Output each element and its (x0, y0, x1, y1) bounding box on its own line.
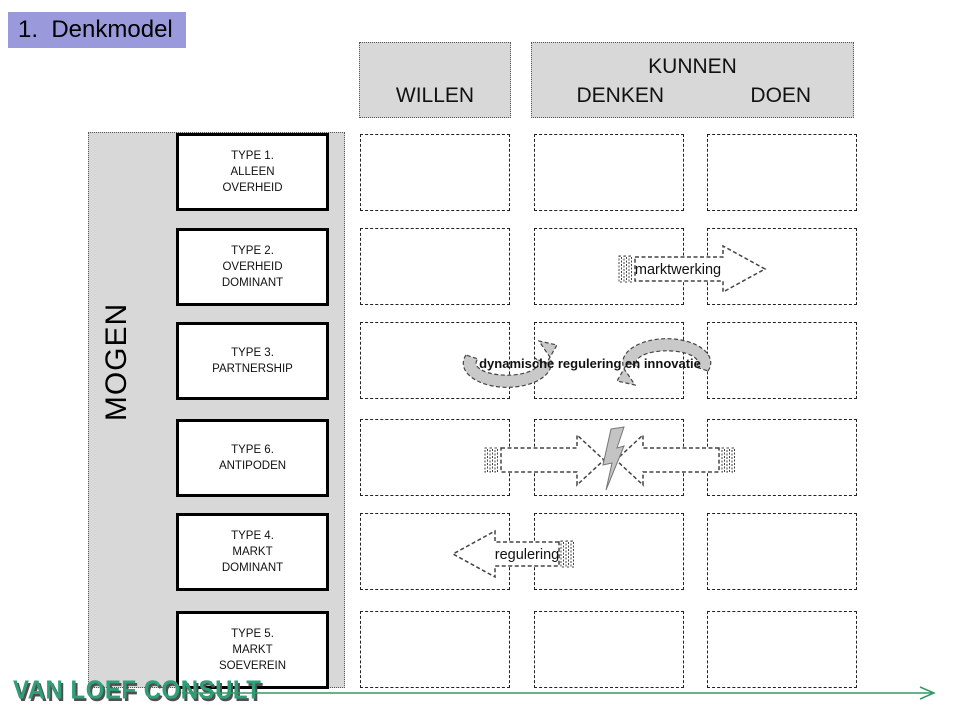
grid-cell (360, 228, 510, 305)
header-willen-label: WILLEN (396, 84, 474, 108)
type-box-4: TYPE 4. MARKT DOMINANT (176, 513, 329, 591)
header-doen-label: DOEN (709, 84, 853, 108)
header-kunnen: KUNNEN DENKEN DOEN (531, 42, 854, 118)
grid-cell (360, 611, 510, 688)
type-box-3: TYPE 3. PARTNERSHIP (176, 322, 329, 400)
marktwerking-arrow-label: marktwerking (635, 262, 721, 278)
grid-cell (360, 134, 510, 211)
dynamische-regulering-label: dynamische regulering en innovatie (470, 356, 710, 371)
grid-cell (534, 134, 684, 211)
page-title: 1. Denkmodel (8, 12, 186, 48)
marktwerking-arrow: marktwerking (618, 243, 768, 295)
type-box-6: TYPE 6. ANTIPODEN (176, 419, 329, 497)
header-kunnen-label: KUNNEN (532, 55, 853, 79)
type-box-1: TYPE 1. ALLEEN OVERHEID (176, 133, 329, 211)
opposing-arrows (484, 424, 736, 496)
header-willen: WILLEN (359, 42, 511, 118)
type-box-2: TYPE 2. OVERHEID DOMINANT (176, 228, 329, 306)
grid-cell (707, 513, 857, 590)
header-denken-label: DENKEN (532, 84, 709, 108)
grid-cell (534, 611, 684, 688)
grid-cell (707, 611, 857, 688)
bottom-axis-arrow (180, 684, 948, 702)
row-axis-label: MOGEN (100, 282, 140, 442)
grid-cell (707, 322, 857, 399)
grid-cell (707, 134, 857, 211)
regulering-arrow-label: regulering (495, 547, 560, 563)
slide: 1. Denkmodel WILLEN KUNNEN DENKEN DOEN M… (0, 0, 960, 720)
regulering-arrow: regulering (450, 528, 576, 580)
